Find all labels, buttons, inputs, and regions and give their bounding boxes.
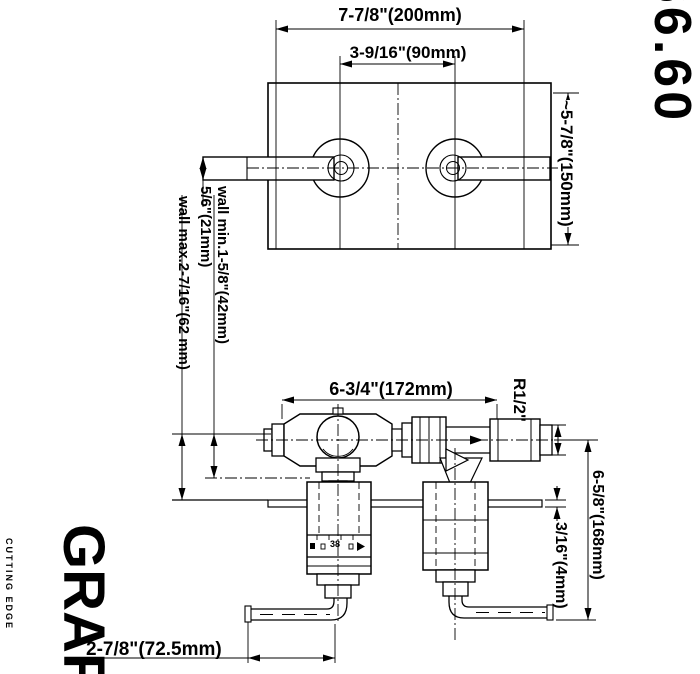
dim-wall-min-label: wall min.1-5/8"(42mm) <box>215 186 230 344</box>
dim-plate-thickness-label: 3/16"(4mm) <box>552 522 568 609</box>
mixer-body <box>264 407 392 487</box>
union-and-check-valve <box>392 417 552 483</box>
brand-tagline: CUTTING EDGE <box>4 538 13 630</box>
dim-plate-width-label: 7-7/8"(200mm) <box>276 6 524 24</box>
right-outlet-hose <box>449 596 553 620</box>
left-outlet-hose <box>245 598 347 622</box>
left-handle <box>203 157 334 180</box>
dim-valve-width-label: 6-3/4"(172mm) <box>291 380 491 398</box>
right-cartridge <box>423 482 488 596</box>
dim-handle-thickness-label: 5/6"(21mm) <box>198 186 213 267</box>
temp-scale-mark: 38 <box>330 540 340 549</box>
dim-hole-spacing-label: 3-9/16"(90mm) <box>328 44 488 61</box>
wall-plate-top-view <box>203 83 566 249</box>
valve-side-view <box>245 404 598 640</box>
part-number: 66.60 <box>646 0 698 124</box>
dim-valve-height-label: 6-5/8"(168mm) <box>589 470 605 580</box>
brand-logo: GRAFF <box>54 524 112 674</box>
dim-connection-radius-label: R1/2" <box>511 378 528 422</box>
dim-wall-max-label: wall max.2-7/16"(62 mm) <box>176 196 191 370</box>
technical-drawing-page: 7-7/8"(200mm) 3-9/16"(90mm) ~5-7/8"(150m… <box>0 0 700 674</box>
dim-plate-height-label: ~5-7/8"(150mm) <box>558 100 575 227</box>
right-handle <box>458 157 550 180</box>
